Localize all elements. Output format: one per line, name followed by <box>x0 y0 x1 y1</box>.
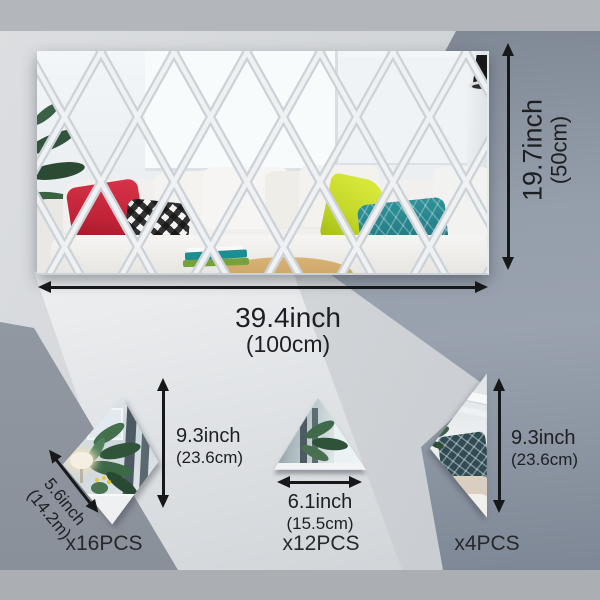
diamond-grid-overlay <box>37 51 487 273</box>
mirror-panel-preview <box>37 51 489 275</box>
panel-height-inches: 19.7inch <box>518 99 548 201</box>
triangle-base-label: 6.1inch (15.5cm) <box>286 490 353 534</box>
reflection-small-plant <box>91 482 108 494</box>
reflection-lamp-stand <box>80 469 83 483</box>
reflection-yellow-flowers <box>95 478 99 482</box>
half-diamond-height-inches: 9.3inch <box>511 426 578 450</box>
rhombus-height-cm: (23.6cm) <box>176 448 243 468</box>
half-diamond-count: x4PCS <box>454 532 519 556</box>
top-strip <box>0 0 600 31</box>
reflection-window-sill <box>272 463 368 472</box>
half-diamond-mirror-reflection <box>428 372 490 519</box>
triangle-count: x12PCS <box>282 532 359 556</box>
triangle-piece <box>272 398 368 472</box>
reflection-blanket <box>442 494 490 519</box>
reflection-lamp <box>70 452 93 469</box>
triangle-base-inches: 6.1inch <box>286 490 353 514</box>
half-diamond-piece <box>428 372 490 519</box>
rhombus-height-label: 9.3inch (23.6cm) <box>176 424 243 468</box>
rhombus-height-arrow <box>162 390 165 496</box>
panel-width-inches: 39.4inch <box>235 302 341 334</box>
half-diamond-height-cm: (23.6cm) <box>511 450 578 470</box>
triangle-mirror-reflection <box>272 398 368 472</box>
product-dimension-infographic: 39.4inch (100cm) 19.7inch (50cm) 9.3inch… <box>0 0 600 600</box>
panel-height-label: 19.7inch (50cm) <box>518 99 573 201</box>
rhombus-count: x16PCS <box>65 532 142 556</box>
panel-width-arrow <box>50 286 476 289</box>
bottom-strip <box>0 570 600 600</box>
rhombus-height-inches: 9.3inch <box>176 424 243 448</box>
half-diamond-height-arrow <box>498 390 501 501</box>
half-diamond-height-label: 9.3inch (23.6cm) <box>511 426 578 470</box>
panel-height-cm: (50cm) <box>548 99 573 201</box>
panel-width-cm: (100cm) <box>246 331 330 358</box>
triangle-base-arrow <box>289 481 350 484</box>
panel-height-arrow <box>507 55 510 258</box>
